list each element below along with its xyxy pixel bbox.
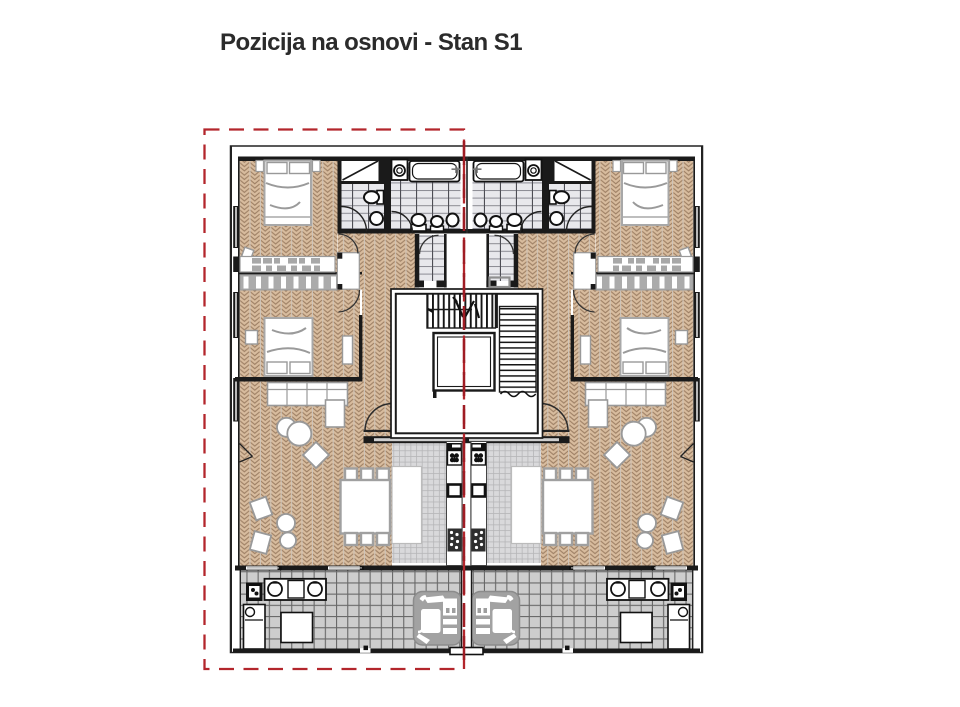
svg-text:Pozicija na osnovi - Stan S1: Pozicija na osnovi - Stan S1 — [220, 29, 522, 56]
